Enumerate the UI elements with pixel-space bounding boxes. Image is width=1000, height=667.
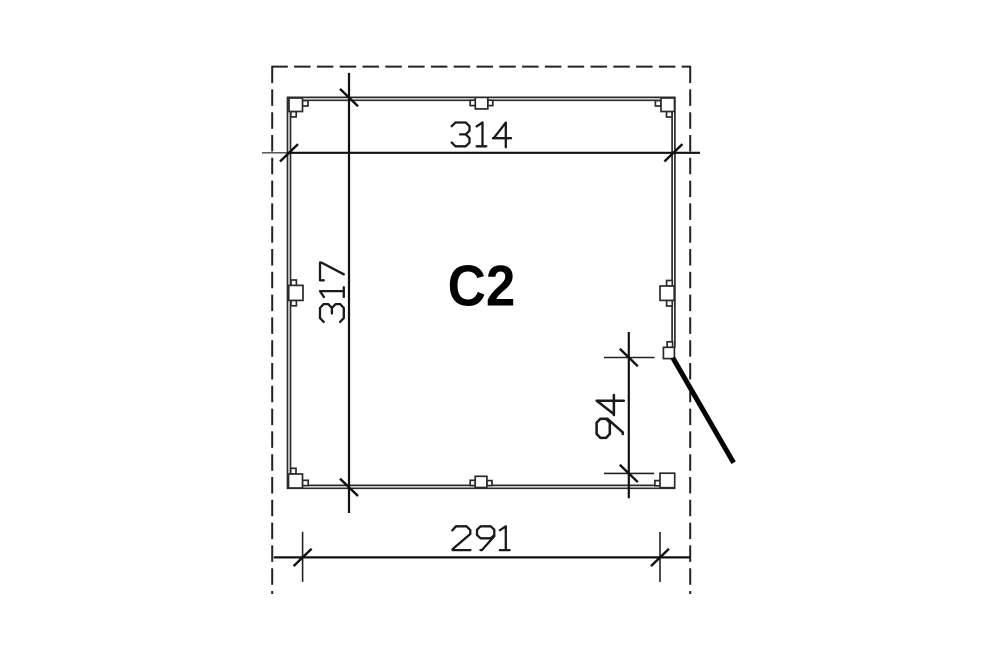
svg-text:C2: C2	[448, 254, 516, 318]
